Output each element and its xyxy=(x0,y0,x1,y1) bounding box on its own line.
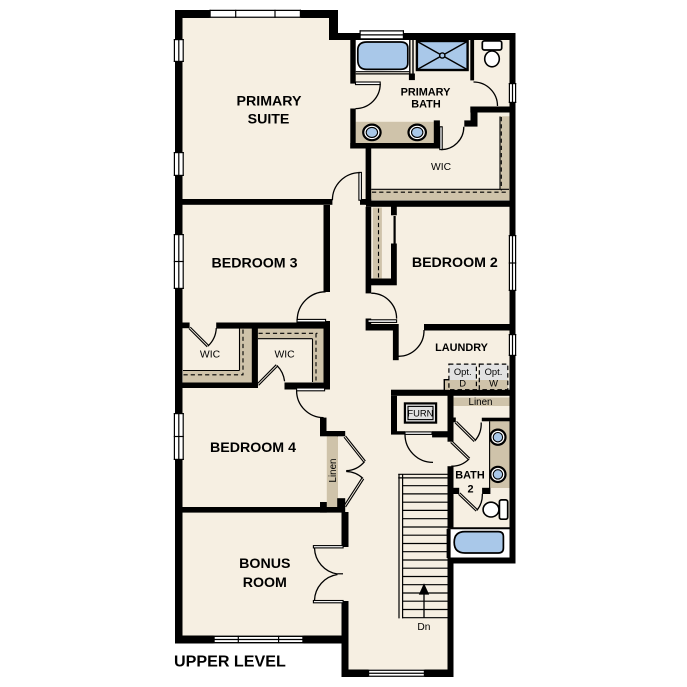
svg-text:BEDROOM 2: BEDROOM 2 xyxy=(412,255,498,271)
svg-text:WIC: WIC xyxy=(274,350,295,361)
svg-text:Dn: Dn xyxy=(417,622,430,633)
svg-text:BEDROOM 4: BEDROOM 4 xyxy=(210,440,296,456)
svg-text:Linen: Linen xyxy=(469,397,493,408)
svg-text:LAUNDRY: LAUNDRY xyxy=(435,342,489,354)
svg-text:BONUS: BONUS xyxy=(239,556,290,572)
svg-text:UPPER LEVEL: UPPER LEVEL xyxy=(174,653,286,671)
svg-text:WIC: WIC xyxy=(200,350,221,361)
svg-text:PRIMARY: PRIMARY xyxy=(401,86,452,98)
svg-text:FURN: FURN xyxy=(407,408,433,419)
svg-text:Linen: Linen xyxy=(328,459,339,483)
svg-text:SUITE: SUITE xyxy=(248,112,290,128)
svg-text:Opt.: Opt. xyxy=(454,366,472,377)
svg-text:WIC: WIC xyxy=(431,162,452,173)
svg-text:BATH: BATH xyxy=(411,99,441,111)
svg-text:2: 2 xyxy=(467,484,473,496)
svg-text:ROOM: ROOM xyxy=(243,575,287,591)
svg-text:BEDROOM 3: BEDROOM 3 xyxy=(212,255,298,271)
svg-text:BATH: BATH xyxy=(455,470,485,482)
svg-text:D: D xyxy=(459,377,466,388)
svg-text:PRIMARY: PRIMARY xyxy=(237,93,302,109)
svg-text:W: W xyxy=(489,377,498,388)
svg-text:Opt.: Opt. xyxy=(485,366,503,377)
